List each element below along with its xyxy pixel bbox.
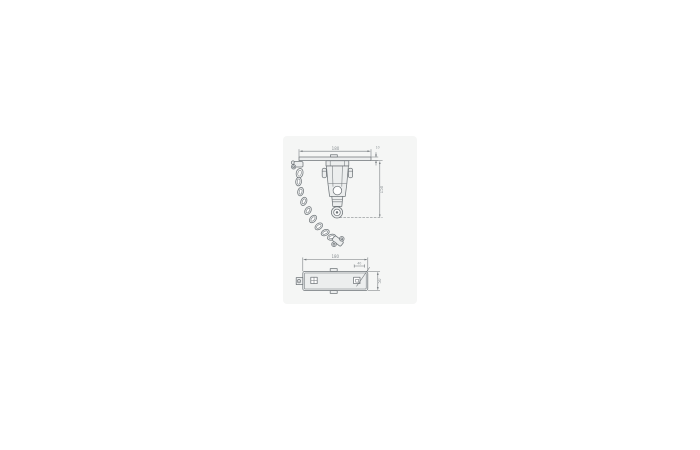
pin-hole <box>333 186 342 195</box>
beam-thickness-dimension: 10 <box>372 146 380 166</box>
front-height-label: 150 <box>379 185 384 193</box>
right-ear <box>348 168 352 178</box>
front-width-label: 180 <box>332 146 340 151</box>
beam-plate <box>296 267 369 293</box>
plan-depth-label: 50 <box>377 278 382 284</box>
hole-dimension: 40 <box>354 262 364 268</box>
product-image-panel: 180 10 150 <box>283 136 417 304</box>
left-square-hole <box>311 277 317 283</box>
plan-depth-dimension: 50 <box>368 271 382 290</box>
beam-thickness-label: 10 <box>376 146 380 150</box>
chain-shackle <box>291 161 304 179</box>
chain-end-connector <box>332 235 344 246</box>
chain-anchor-tab <box>296 278 303 285</box>
left-ear <box>322 168 326 178</box>
beam-strap-tab <box>331 155 338 157</box>
top-tab <box>330 269 337 272</box>
front-view: 180 10 150 <box>291 146 384 247</box>
beam <box>299 155 371 161</box>
plan-width-label: 180 <box>331 254 339 259</box>
plan-view: 180 <box>296 254 382 293</box>
bottom-tab <box>330 291 337 294</box>
clevis-bracket <box>322 161 352 208</box>
technical-drawing: 180 10 150 <box>283 136 417 304</box>
hole-dimension-label: 40 <box>357 262 361 266</box>
swivel-bearing <box>331 207 342 218</box>
lower-link <box>332 196 343 206</box>
